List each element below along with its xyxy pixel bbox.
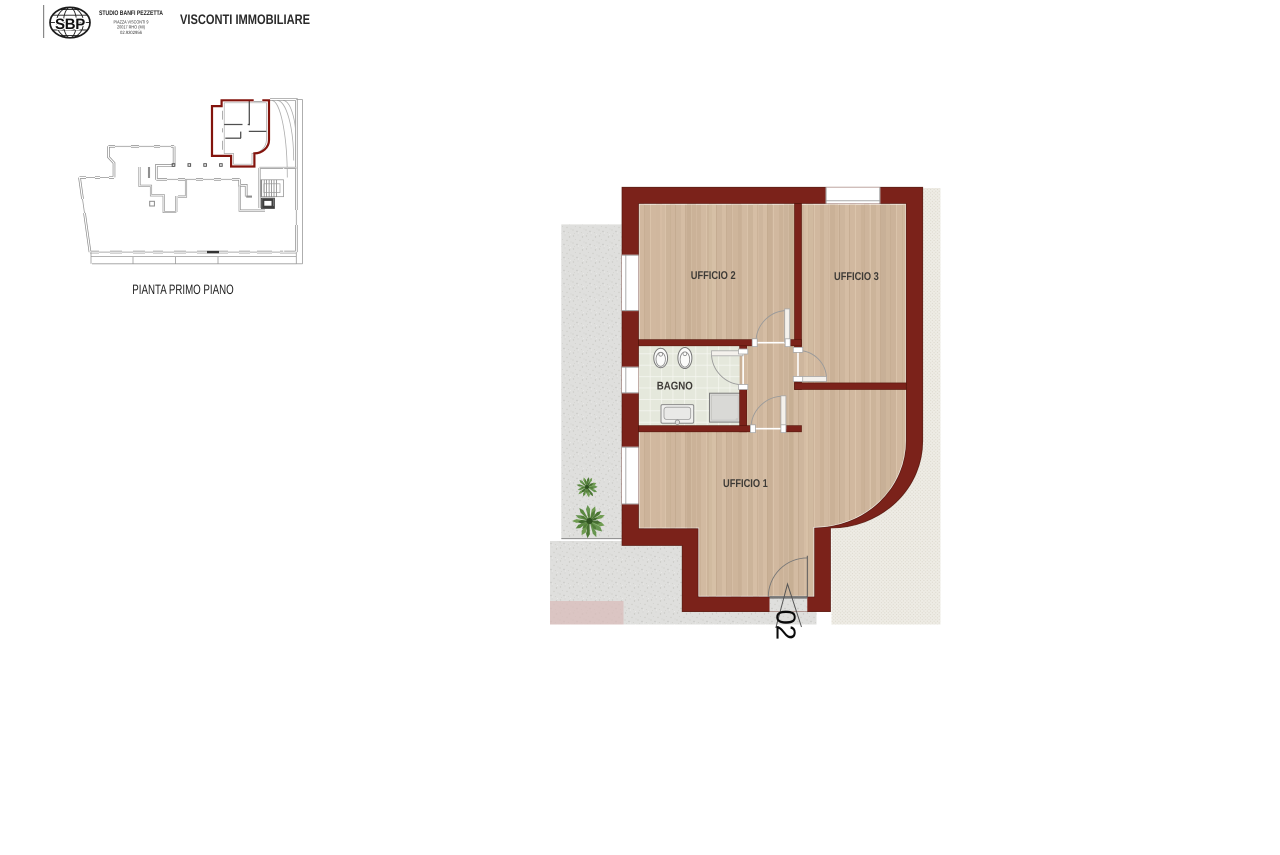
- svg-text:SBP: SBP: [55, 16, 85, 33]
- svg-text:UFFICIO 1: UFFICIO 1: [723, 478, 768, 490]
- svg-text:02: 02: [771, 610, 802, 641]
- svg-text:BAGNO: BAGNO: [657, 381, 693, 393]
- svg-text:VISCONTI IMMOBILIARE: VISCONTI IMMOBILIARE: [180, 12, 310, 27]
- svg-text:02.9302956: 02.9302956: [120, 30, 142, 35]
- svg-text:PIANTA PRIMO PIANO: PIANTA PRIMO PIANO: [132, 282, 233, 297]
- svg-text:UFFICIO 3: UFFICIO 3: [834, 271, 879, 283]
- svg-text:UFFICIO 2: UFFICIO 2: [691, 270, 736, 282]
- svg-text:STUDIO BANFI PEZZETTA: STUDIO BANFI PEZZETTA: [99, 10, 163, 17]
